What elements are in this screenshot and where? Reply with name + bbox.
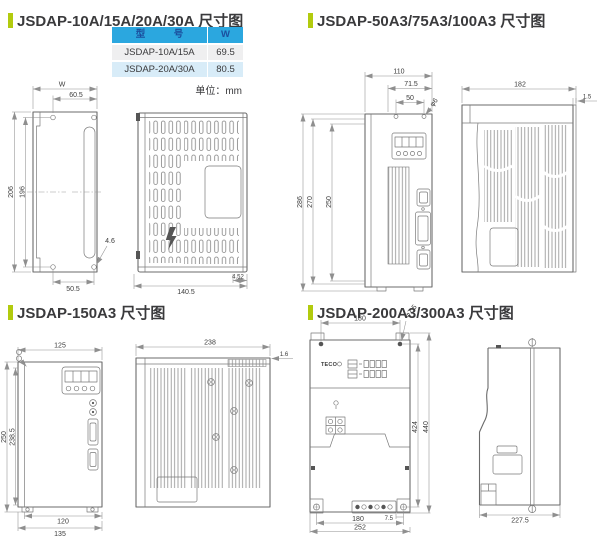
teco-logo: TECO <box>321 362 338 368</box>
dim-s1-depth: 140.5 <box>177 289 195 296</box>
dim-s2-lip: 1.5 <box>583 95 592 101</box>
spec-table-cell-model: JSDAP-20A/30A <box>112 62 207 77</box>
dim-s3-depth: 238 <box>204 340 216 347</box>
s3-front-view-drawing: 125 250 238.5 120 135 <box>1 343 102 538</box>
dim-s1-bottom: 50.5 <box>66 286 80 293</box>
spec-table-row: JSDAP-10A/15A 69.5 <box>112 45 243 60</box>
dim-s2-hole: φ6 <box>429 97 440 108</box>
title-accent-bar <box>8 13 13 28</box>
spec-table-header-row: 型 号 W <box>112 27 243 43</box>
s2-side-view-drawing: 182 1.5 <box>462 82 597 273</box>
dim-s1-h-outer: 206 <box>8 186 15 198</box>
dim-s4-h2: 440 <box>423 421 430 433</box>
s1-side-view-drawing: 140.5 4.52 <box>134 113 247 296</box>
dim-s1-top: 60.5 <box>69 92 83 99</box>
dim-s1-h-inner: 196 <box>20 186 27 198</box>
s1-front-view-drawing: W 60.5 206 196 50.5 4.6 <box>8 82 115 294</box>
dim-s2-h3: 250 <box>326 196 333 208</box>
dim-s3-b2: 135 <box>54 531 66 538</box>
dim-s4-h1: 424 <box>412 421 419 433</box>
unit-note: 单位：mm <box>150 82 242 97</box>
section-title-s3: JSDAP-150A3 尺寸图 <box>8 302 165 323</box>
dim-s4-depth: 227.5 <box>511 518 529 525</box>
dim-s2-w2: 71.5 <box>404 81 418 88</box>
dim-s2-h1: 286 <box>297 196 304 208</box>
spec-table-header-model: 型 号 <box>112 27 207 43</box>
dim-s3-w: 125 <box>54 343 66 350</box>
title-accent-bar <box>308 13 313 28</box>
dim-s2-w1: 110 <box>393 69 404 76</box>
spec-table-cell-w: 80.5 <box>208 62 243 77</box>
dim-s3-h-inner: 238.5 <box>10 428 17 446</box>
s3-side-view-drawing: 238 1.6 <box>136 340 293 508</box>
dim-s4-b3: 252 <box>354 525 366 532</box>
section-title-text: JSDAP-50A3/75A3/100A3 尺寸图 <box>317 10 545 31</box>
s4-side-view-drawing: 227.5 <box>480 338 561 525</box>
dim-s2-h2: 270 <box>307 196 314 208</box>
s4-front-view-drawing: TECO <box>310 304 431 533</box>
section-title-s2: JSDAP-50A3/75A3/100A3 尺寸图 <box>308 10 545 31</box>
technical-drawings-canvas: W 60.5 206 196 50.5 4.6 <box>0 0 600 538</box>
dim-s4-b1: 7.5 <box>385 516 394 522</box>
dim-s3-lip: 1.6 <box>280 352 289 358</box>
section-title-text: JSDAP-150A3 尺寸图 <box>17 302 165 323</box>
dim-s3-b1: 120 <box>57 519 69 526</box>
spec-table: 型 号 W JSDAP-10A/15A 69.5 JSDAP-20A/30A 8… <box>112 27 243 79</box>
keypad-buttons <box>364 361 387 378</box>
dim-s1-hole: 4.6 <box>105 238 115 245</box>
manual-page: W 60.5 206 196 50.5 4.6 <box>0 0 600 538</box>
dim-s1-foot: 4.52 <box>232 275 244 281</box>
dim-s2-depth: 182 <box>514 82 526 89</box>
spec-table-cell-w: 69.5 <box>208 45 243 60</box>
title-accent-bar <box>308 305 313 320</box>
dim-s4-b2: 180 <box>352 516 364 523</box>
section-title-text: JSDAP-200A3/300A3 尺寸图 <box>317 302 514 323</box>
dim-s3-h-outer: 250 <box>1 431 8 443</box>
section-title-s4: JSDAP-200A3/300A3 尺寸图 <box>308 302 514 323</box>
dim-s1-w: W <box>59 82 66 89</box>
spec-table-cell-model: JSDAP-10A/15A <box>112 45 207 60</box>
spec-table-row: JSDAP-20A/30A 80.5 <box>112 62 243 77</box>
s2-front-view-drawing: 110 71.5 50 φ6 286 270 250 <box>297 69 440 292</box>
dim-s2-w3: 50 <box>406 95 414 102</box>
title-accent-bar <box>8 305 13 320</box>
spec-table-header-w: W <box>208 27 243 43</box>
